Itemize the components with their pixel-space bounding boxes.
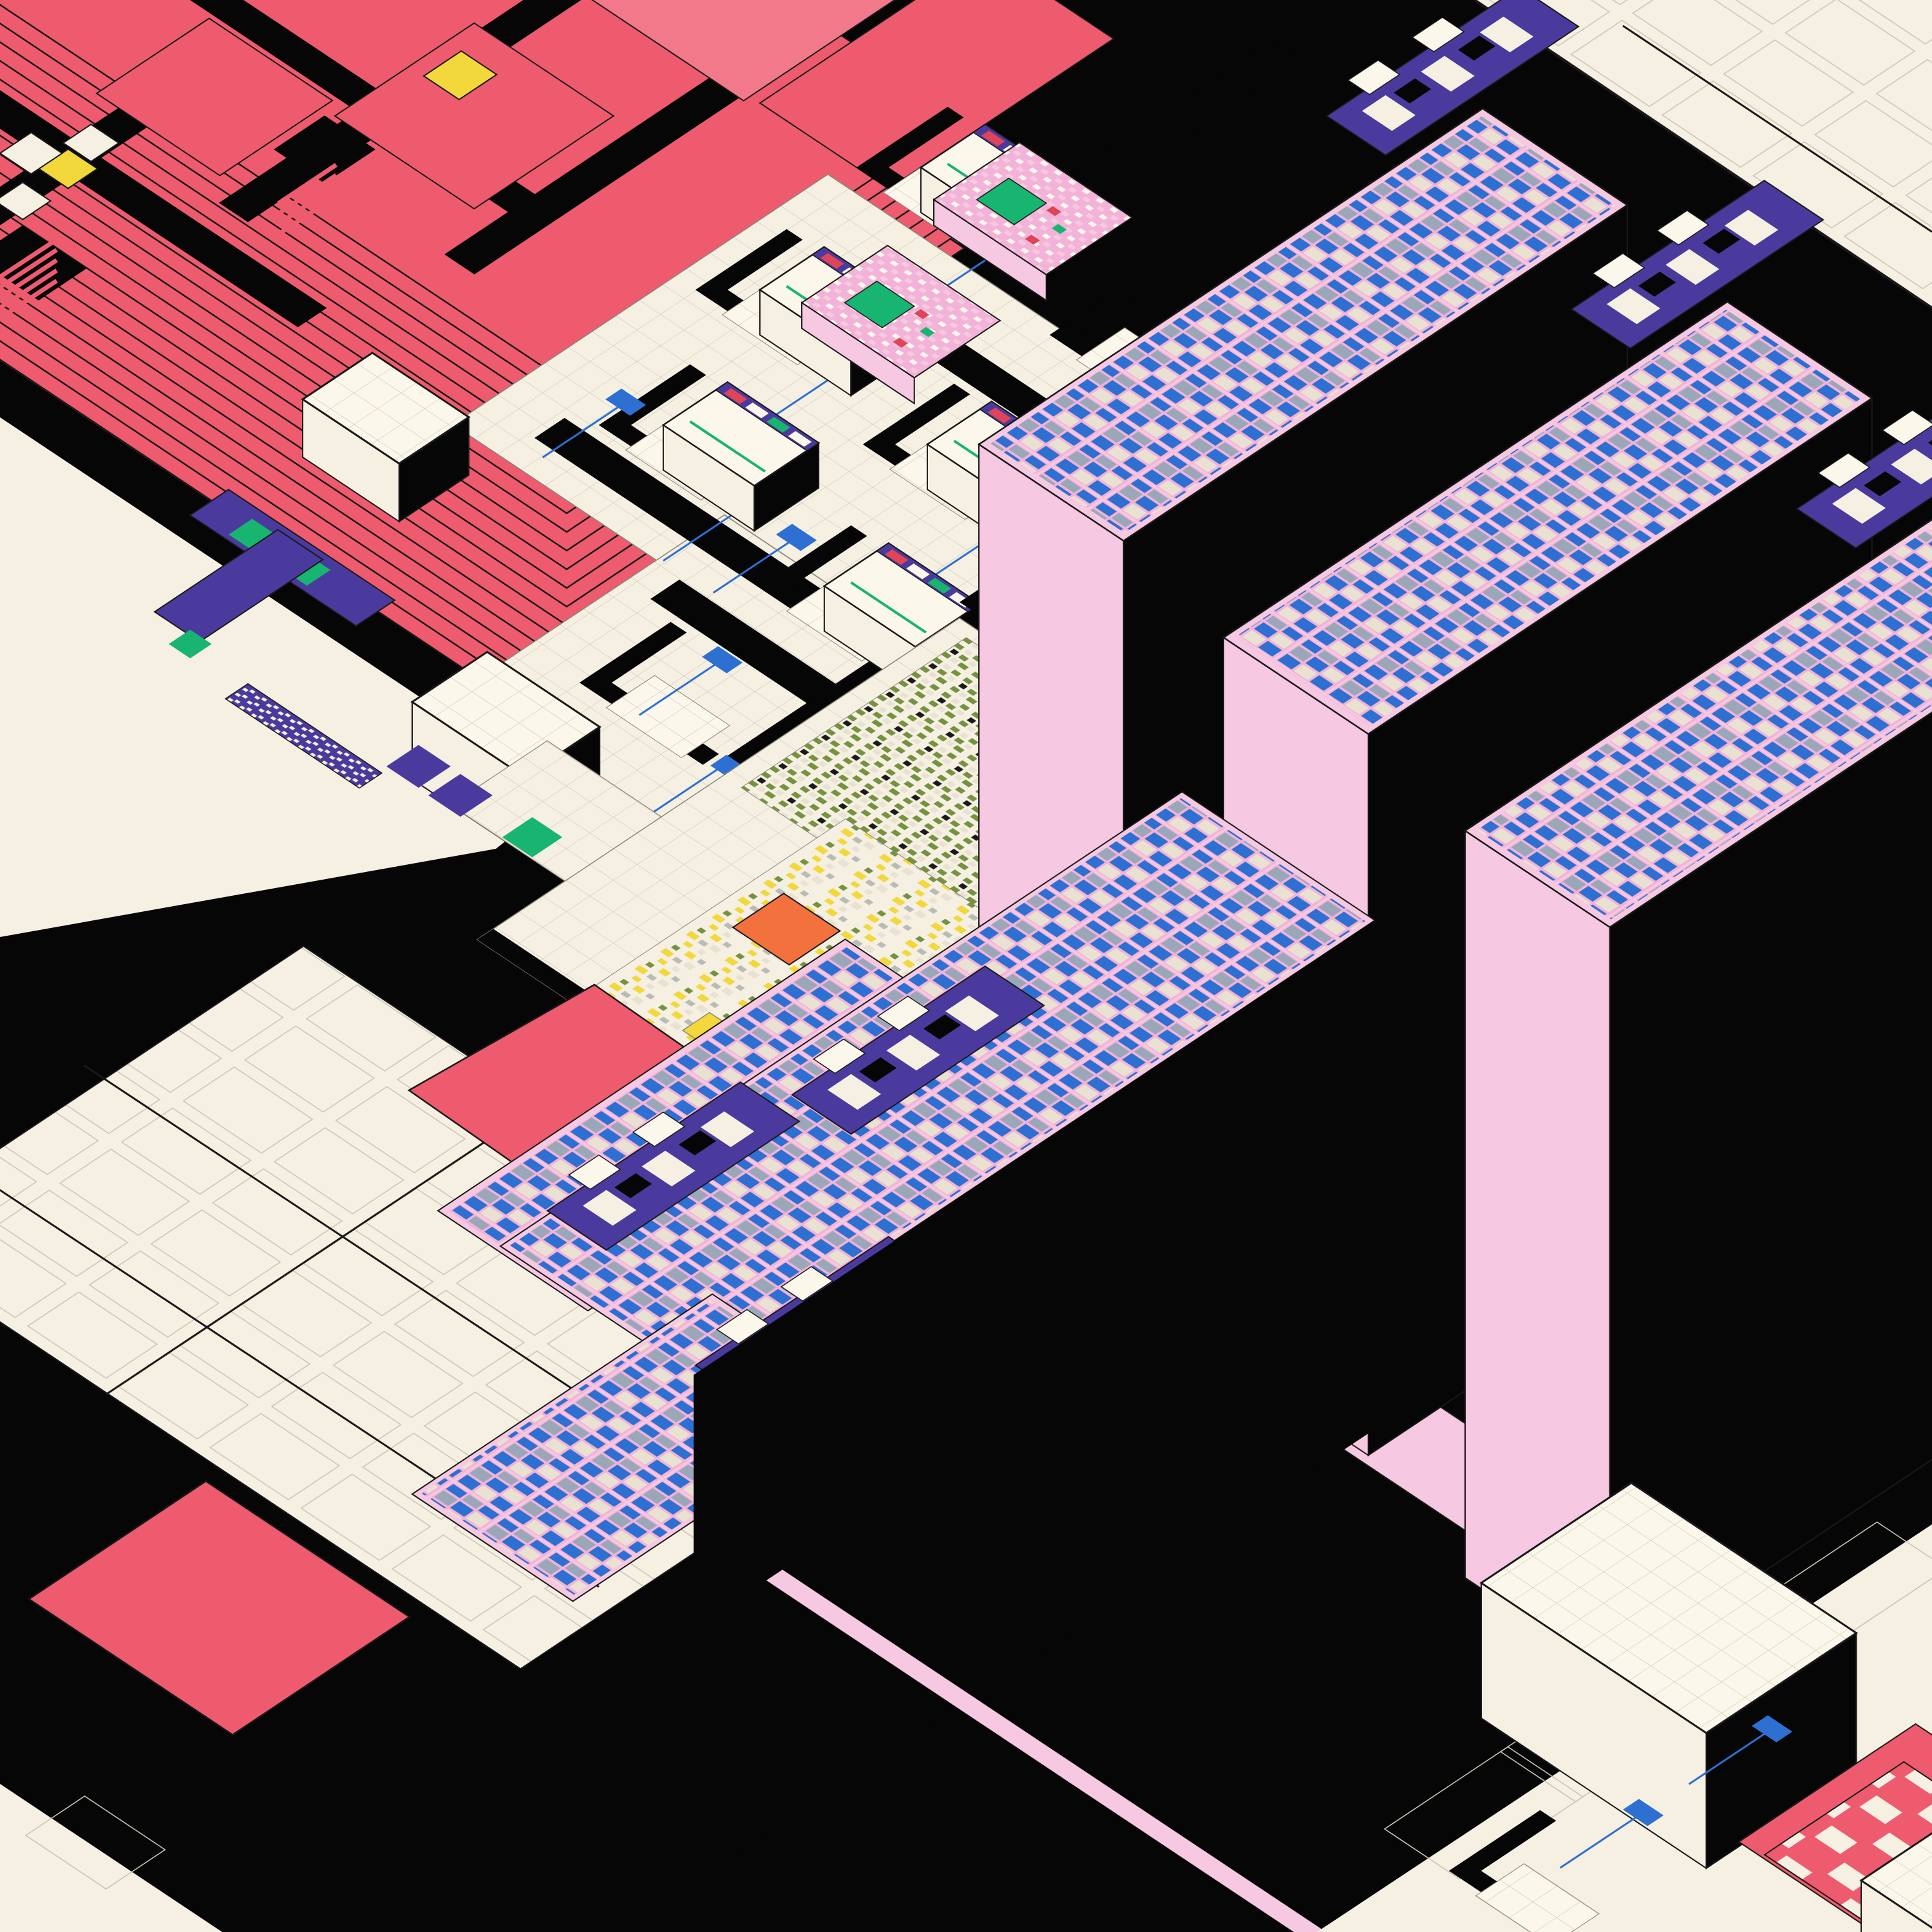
artwork-stage [0, 0, 1932, 1932]
scene-root [0, 0, 1932, 1932]
artwork-canvas [0, 0, 1932, 1932]
